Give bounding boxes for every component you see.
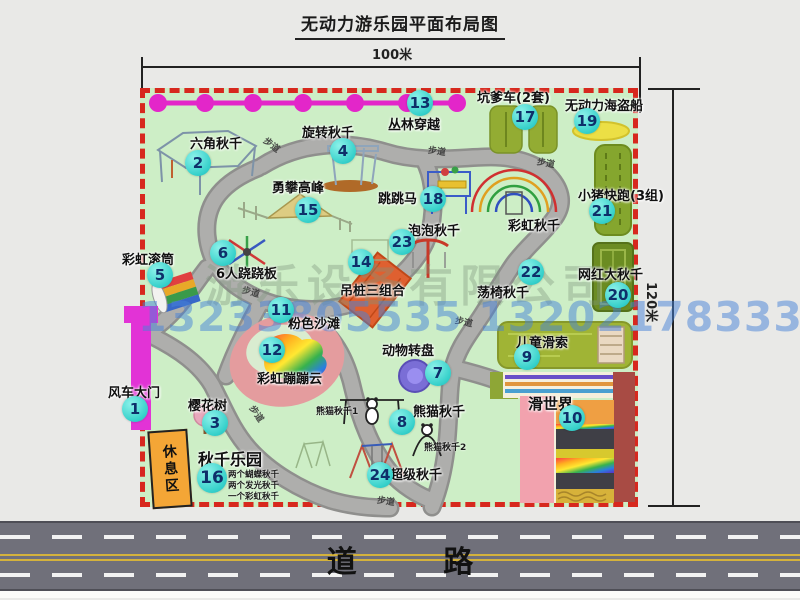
attraction-11-badge: 11 bbox=[268, 297, 294, 323]
attraction-5-badge: 5 bbox=[147, 262, 173, 288]
attraction-1-badge: 1 bbox=[122, 396, 148, 422]
attraction-7-label: 动物转盘 bbox=[382, 340, 434, 359]
swing-park-detail-3: 一个彩虹秋千 bbox=[228, 490, 279, 502]
attraction-8-badge: 8 bbox=[389, 409, 415, 435]
attraction-23-label: 泡泡秋千 bbox=[408, 220, 460, 239]
walkway-label: 步道 bbox=[376, 493, 396, 508]
attraction-15-badge: 15 bbox=[295, 197, 321, 223]
attraction-20-label: 网红大秋千 bbox=[578, 264, 643, 283]
attraction-4-badge: 4 bbox=[330, 138, 356, 164]
attraction-15-label: 勇攀高峰 bbox=[272, 177, 324, 196]
attraction-8-label: 熊猫秋千 bbox=[413, 401, 465, 420]
rainbow-swing-label: 彩虹秋千 bbox=[508, 215, 560, 234]
rest-area-box: 休息区 bbox=[147, 429, 192, 510]
attraction-9-badge: 9 bbox=[514, 344, 540, 370]
panda-swing-2-label: 熊猫秋千2 bbox=[424, 440, 466, 453]
attraction-23-badge: 23 bbox=[389, 229, 415, 255]
attraction-18-badge: 18 bbox=[420, 186, 446, 212]
attraction-12-badge: 12 bbox=[259, 337, 285, 363]
slide-world-shape bbox=[490, 372, 635, 503]
walkway-label: 步道 bbox=[427, 143, 447, 158]
attraction-14-badge: 14 bbox=[348, 249, 374, 275]
attraction-2-badge: 2 bbox=[185, 150, 211, 176]
attraction-6-label: 6人跷跷板 bbox=[216, 263, 277, 282]
attraction-18-label: 跳跳马 bbox=[378, 188, 417, 207]
attraction-6-badge: 6 bbox=[210, 240, 236, 266]
watermark-phone: 13233805535 13202178333 bbox=[138, 293, 800, 341]
attraction-17-badge: 17 bbox=[512, 104, 538, 130]
attraction-16-badge: 16 bbox=[197, 463, 227, 493]
attraction-22-label: 荡椅秋千 bbox=[477, 282, 529, 301]
rest-area-label: 休息区 bbox=[158, 443, 182, 495]
attraction-11-label: 粉色沙滩 bbox=[288, 313, 340, 332]
attraction-19-badge: 19 bbox=[574, 108, 600, 134]
attraction-13-badge: 13 bbox=[407, 90, 433, 116]
attraction-21-badge: 21 bbox=[589, 198, 615, 224]
attraction-13-label: 丛林穿越 bbox=[388, 114, 440, 133]
attraction-3-badge: 3 bbox=[202, 410, 228, 436]
attraction-17-label: 坑爹车(2套) bbox=[477, 87, 550, 106]
attraction-24-badge: 24 bbox=[367, 462, 393, 488]
attraction-20-badge: 20 bbox=[605, 282, 631, 308]
attraction-24-label: 超级秋千 bbox=[390, 464, 442, 483]
attraction-22-badge: 22 bbox=[518, 259, 544, 285]
panda-swing-1-label: 熊猫秋千1 bbox=[316, 404, 358, 417]
park-layout-map: 无动力游乐园平面布局图 100米 120米 bbox=[0, 0, 800, 600]
attraction-14-label: 吊桩三组合 bbox=[340, 280, 405, 299]
attraction-7-badge: 7 bbox=[425, 360, 451, 386]
attraction-10-badge: 10 bbox=[559, 405, 585, 431]
attraction-12-label: 彩虹蹦蹦云 bbox=[257, 368, 322, 387]
